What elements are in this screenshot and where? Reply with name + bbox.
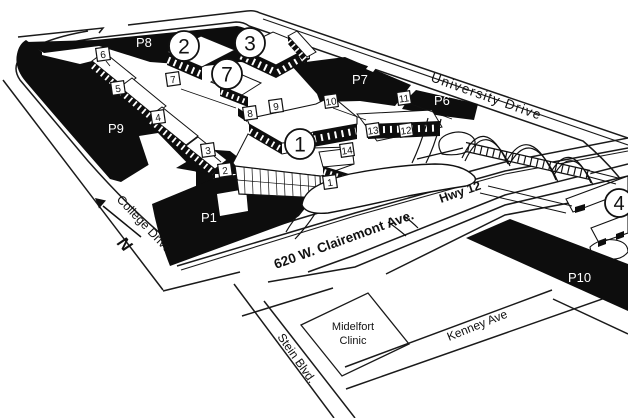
svg-text:Midelfort: Midelfort — [332, 321, 374, 333]
svg-text:2: 2 — [178, 36, 190, 59]
svg-text:Clinic: Clinic — [340, 335, 367, 347]
svg-text:4: 4 — [613, 193, 624, 215]
svg-text:P1: P1 — [201, 210, 217, 225]
svg-text:14: 14 — [341, 145, 354, 158]
svg-text:3: 3 — [244, 33, 256, 56]
svg-text:P10: P10 — [568, 270, 591, 285]
svg-text:12: 12 — [400, 125, 413, 138]
svg-text:P7: P7 — [352, 72, 368, 87]
svg-text:7: 7 — [221, 64, 233, 87]
svg-text:1: 1 — [294, 134, 306, 157]
svg-text:11: 11 — [398, 93, 410, 105]
svg-text:13: 13 — [367, 125, 380, 138]
svg-text:P6: P6 — [434, 93, 450, 108]
svg-text:10: 10 — [325, 96, 338, 109]
svg-text:P8: P8 — [136, 35, 152, 50]
svg-text:P9: P9 — [108, 121, 124, 136]
